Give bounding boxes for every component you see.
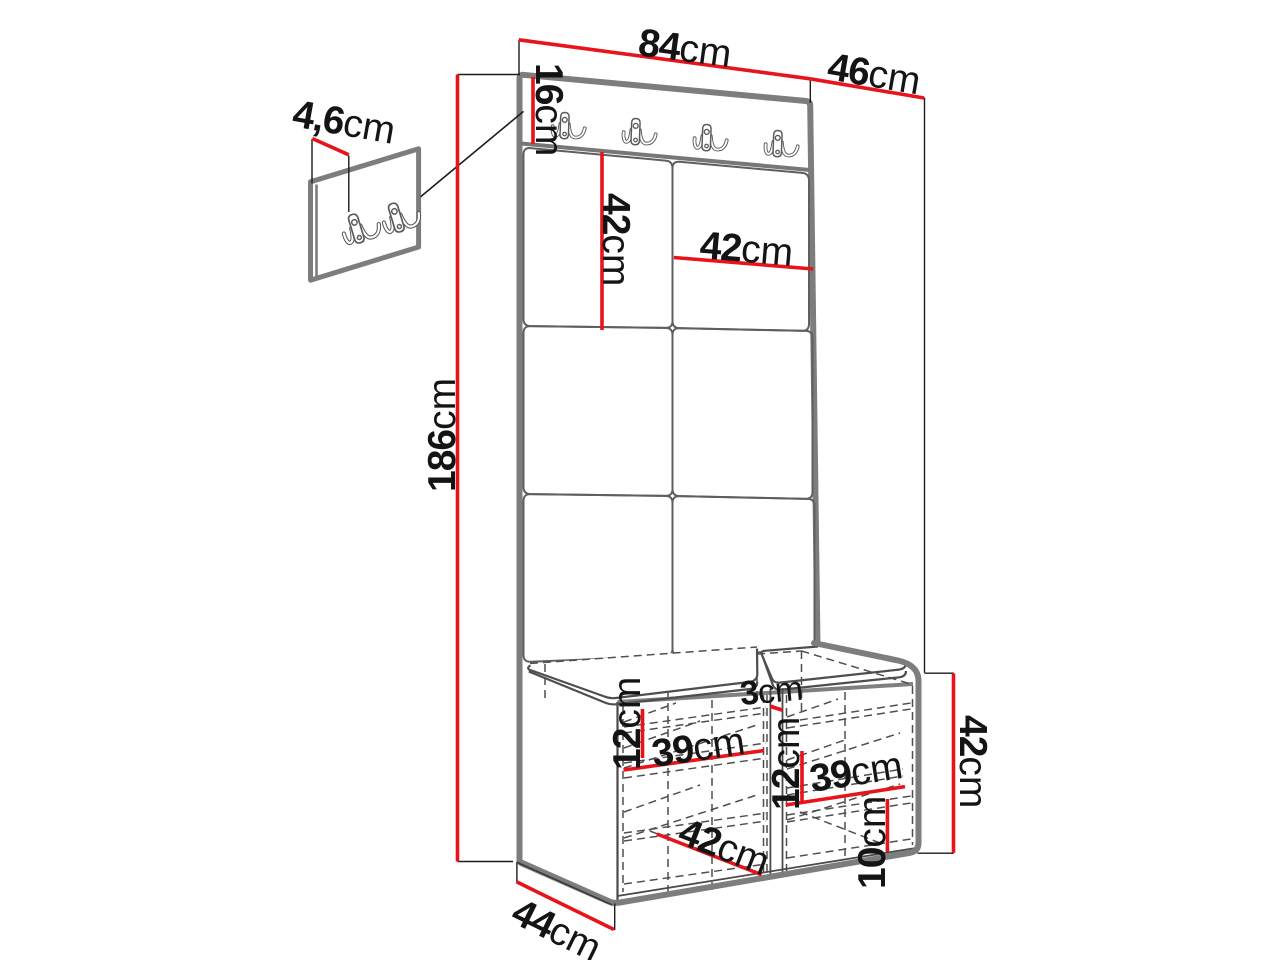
svg-text:12cm: 12cm [765,717,808,810]
svg-text:10cm: 10cm [851,796,894,889]
svg-text:3cm: 3cm [738,670,804,713]
svg-text:42cm: 42cm [698,224,795,275]
svg-text:16cm: 16cm [527,63,570,156]
svg-text:42cm: 42cm [594,193,637,286]
svg-text:186cm: 186cm [421,378,464,492]
svg-text:12cm: 12cm [606,677,649,770]
svg-text:42cm: 42cm [951,715,994,808]
